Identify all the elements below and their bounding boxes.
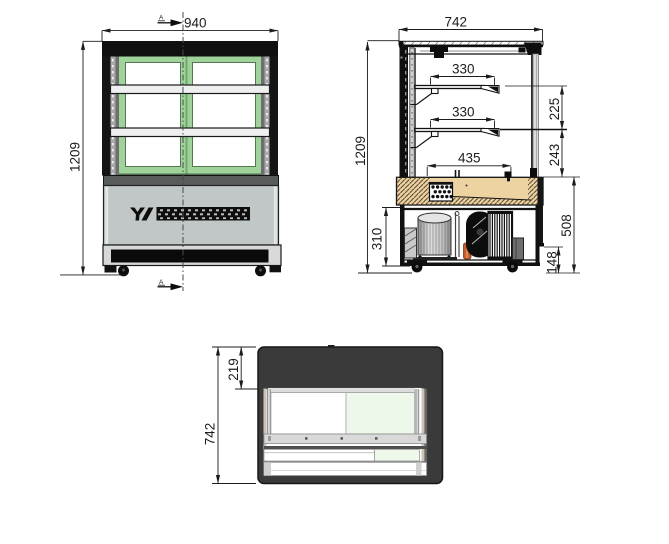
svg-text:435: 435 bbox=[458, 151, 481, 166]
svg-text:243: 243 bbox=[547, 144, 562, 167]
svg-text:330: 330 bbox=[452, 105, 475, 120]
svg-text:508: 508 bbox=[559, 214, 574, 237]
svg-text:310: 310 bbox=[370, 228, 385, 251]
svg-text:1209: 1209 bbox=[68, 142, 83, 172]
svg-text:219: 219 bbox=[226, 358, 241, 381]
svg-text:1209: 1209 bbox=[353, 136, 368, 166]
svg-text:225: 225 bbox=[547, 98, 562, 121]
svg-text:940: 940 bbox=[184, 16, 207, 31]
svg-text:742: 742 bbox=[203, 423, 218, 446]
svg-text:148: 148 bbox=[545, 251, 560, 274]
svg-text:330: 330 bbox=[452, 62, 475, 77]
svg-text:742: 742 bbox=[445, 15, 468, 30]
